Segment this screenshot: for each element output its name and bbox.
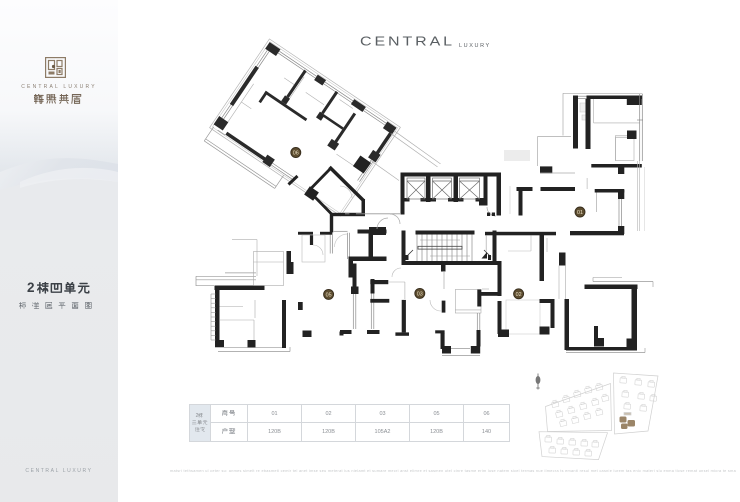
svg-text:06: 06 (293, 151, 299, 157)
svg-text:01: 01 (577, 210, 583, 216)
svg-text:03: 03 (417, 292, 423, 298)
svg-text:02: 02 (516, 292, 522, 298)
svg-text:05: 05 (326, 293, 332, 299)
